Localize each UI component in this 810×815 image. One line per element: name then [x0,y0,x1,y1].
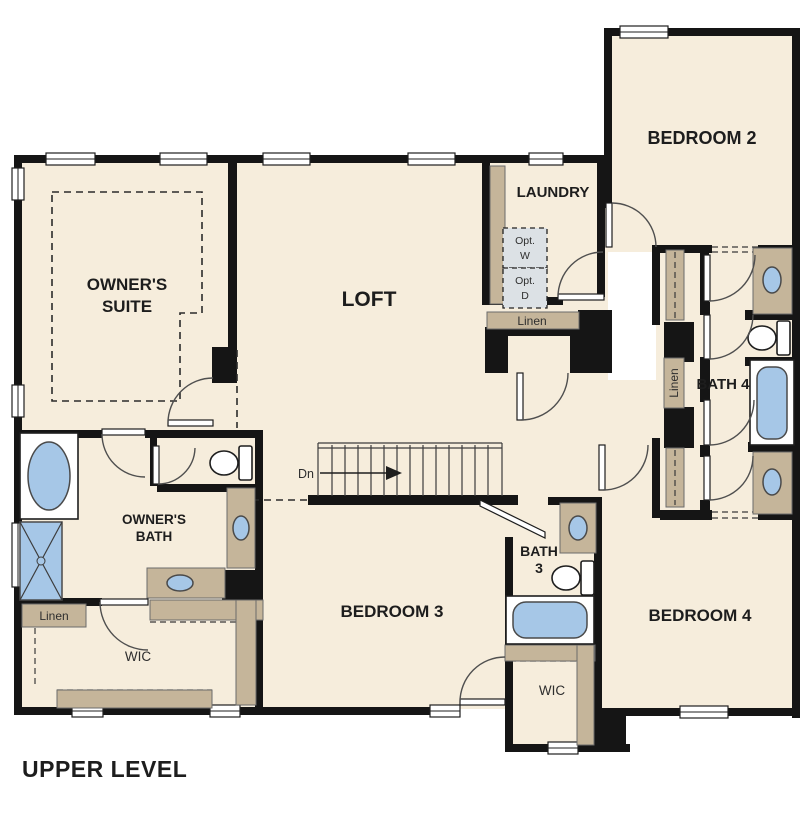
label-bath4: BATH 4 [696,376,750,393]
label-opt-washer-2: W [520,250,530,262]
shower-icon [20,522,62,600]
label-laundry: LAUNDRY [517,184,590,201]
label-linen-laundry: Linen [517,314,546,328]
label-wic-bedroom3: WIC [539,683,565,698]
opt-dryer-box [503,268,547,308]
label-bedroom2: BEDROOM 2 [647,128,756,148]
sink-icon [763,267,781,293]
staircase [318,443,502,496]
wic-shelf-right [236,600,256,705]
wic2-shelf-right [577,645,594,745]
label-owners-bath: OWNER'S [122,512,186,527]
laundry-counter [490,166,505,304]
bathtub-icon [506,596,594,644]
sink-icon [763,469,781,495]
label-bedroom3: BEDROOM 3 [341,602,444,621]
window [12,385,24,417]
label-loft: LOFT [342,288,397,311]
floor-plan-canvas: OWNER'S SUITE LOFT LAUNDRY BEDROOM 2 BED… [0,0,810,810]
window [46,153,95,165]
sink-icon [569,516,587,540]
window [529,153,563,165]
sink-icon [167,575,193,591]
label-owners-suite: OWNER'S [87,275,168,294]
window [12,168,24,200]
label-owners-bath-2: BATH [136,529,173,544]
label-opt-washer: Opt. [515,235,535,247]
bathtub-icon [20,433,78,519]
window [160,153,207,165]
floor-plan-page: OWNER'S SUITE LOFT LAUNDRY BEDROOM 2 BED… [0,0,810,810]
window [430,705,460,717]
label-linen-owners: Linen [39,609,68,623]
label-bedroom4: BEDROOM 4 [649,606,753,625]
laundry-niche [508,336,570,374]
label-owners-suite-2: SUITE [102,297,152,316]
page-title: UPPER LEVEL [22,756,187,782]
window [680,706,728,718]
sink-icon [233,516,249,540]
window [263,153,310,165]
label-wic-owners: WIC [125,649,151,664]
label-linen-hall: Linen [667,368,681,397]
opt-washer-box [503,228,547,268]
label-opt-dryer: Opt. [515,275,535,287]
label-opt-dryer-2: D [521,290,529,302]
label-bath3-2: 3 [535,560,543,576]
wic-shelf-bottom [57,690,212,708]
label-stairs-down: Dn [298,467,314,481]
window [210,705,240,717]
label-bath3: BATH [520,543,558,559]
window [408,153,455,165]
window [548,742,578,754]
bathtub-icon [750,360,794,445]
window [620,26,668,38]
hall-closet-lower [666,448,684,507]
